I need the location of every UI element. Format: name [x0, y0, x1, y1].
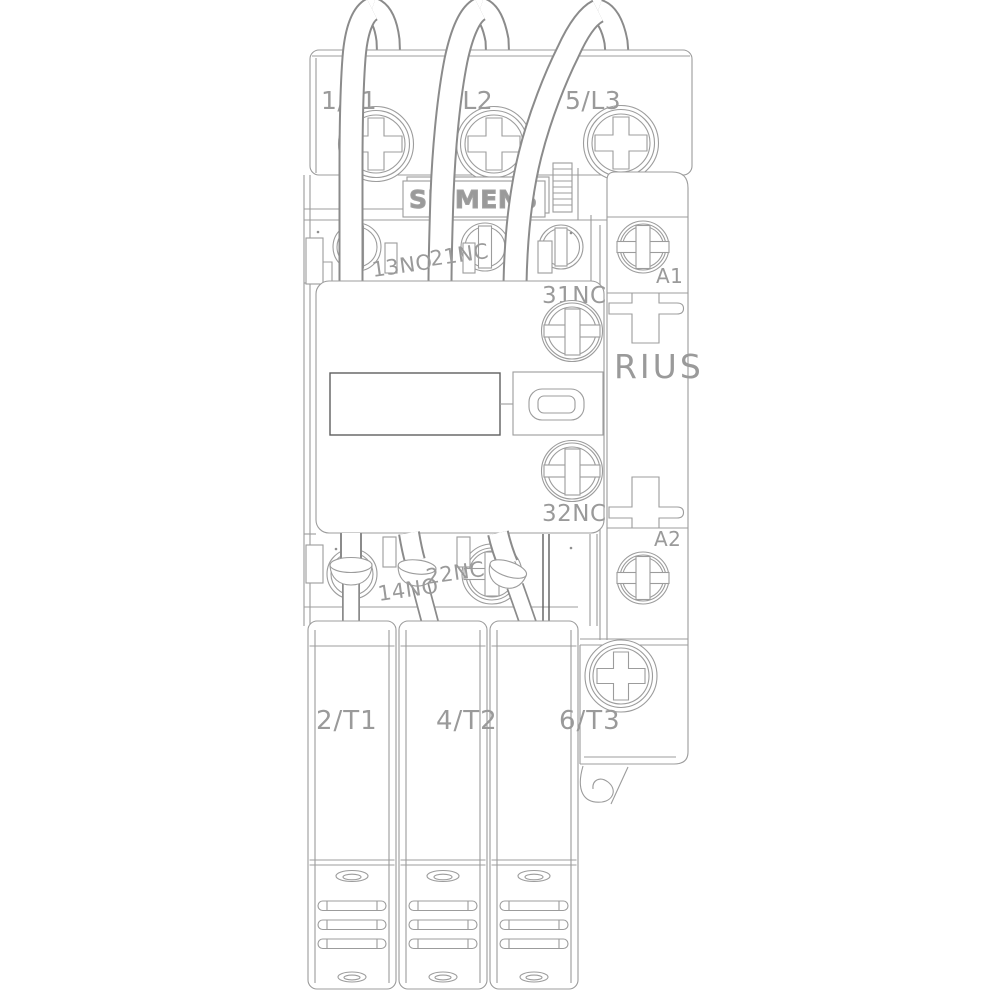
aux-screw-31nc: [542, 301, 603, 362]
coil-clamp-upper: [609, 293, 684, 343]
label-load-terminal-1: 2/T1: [316, 706, 378, 736]
coil-clamp-lower: [609, 477, 684, 528]
label-coil-a2: A2: [654, 527, 681, 551]
side-bracket: [306, 545, 323, 583]
clamp-tab: [383, 537, 396, 567]
aux-screw-32nc: [542, 441, 603, 502]
terminal-cover-6t3: [490, 621, 578, 989]
clamp-tab: [538, 241, 552, 273]
nameplate-window: [330, 373, 500, 435]
label-coil-a1: A1: [656, 264, 683, 288]
side-bracket: [306, 238, 323, 284]
mounting-foot: [580, 766, 613, 802]
terminal-cover-2t1: [308, 621, 396, 989]
load-terminal-covers: 2/T1 4/T2 6/T3: [308, 621, 621, 989]
terminal-screw-5l3: [584, 106, 659, 181]
top-cover: 1/L1 3/L2 5/L3: [310, 50, 692, 182]
terminal-cover-4t2: [399, 621, 487, 989]
label-load-terminal-2: 4/T2: [436, 706, 498, 736]
coil-screw-a2: [617, 552, 669, 604]
aux-switch-block: 31NC 32NC: [316, 281, 607, 533]
load-screw-6t3: [585, 640, 657, 712]
label-load-terminal-3: 6/T3: [559, 706, 621, 736]
contactor-line-drawing: 1/L1 3/L2 5/L3 SIEMENS: [0, 0, 1000, 1000]
label-line-terminal-3: 5/L3: [565, 86, 621, 115]
series-text: RIUS: [614, 347, 704, 386]
label-aux-32nc: 32NC: [542, 501, 607, 527]
drawing-canvas: 1/L1 3/L2 5/L3 SIEMENS: [0, 0, 1000, 1000]
